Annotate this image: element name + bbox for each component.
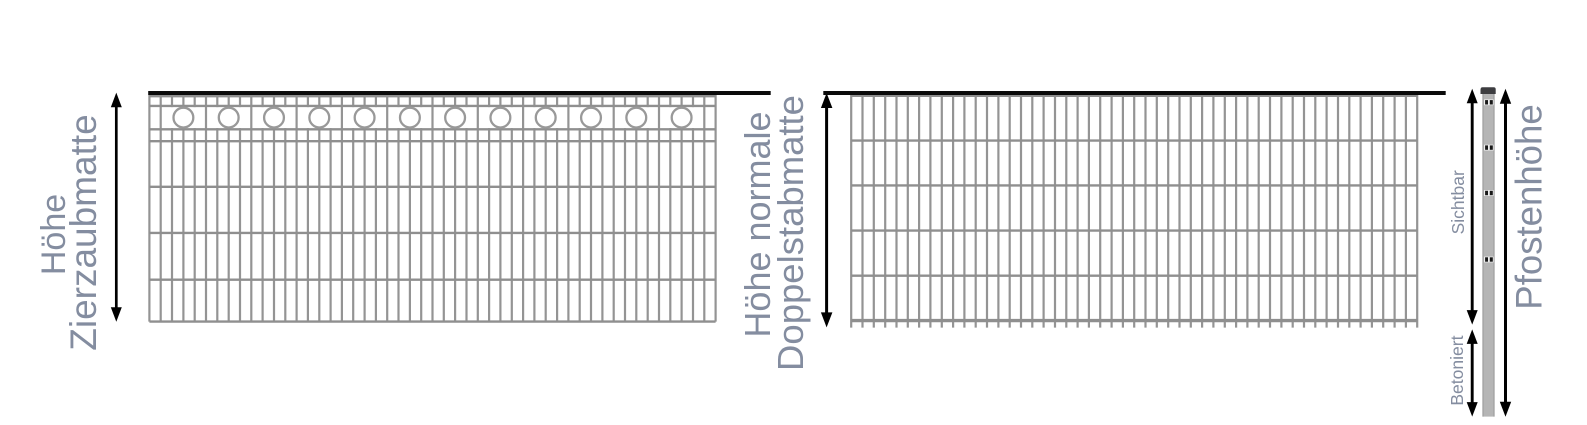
svg-text:Betoniert: Betoniert: [1447, 335, 1467, 405]
svg-text:Sichtbar: Sichtbar: [1448, 170, 1468, 234]
svg-text:Zierzaubmatte: Zierzaubmatte: [63, 114, 104, 351]
svg-text:Pfostenhöhe: Pfostenhöhe: [1508, 104, 1549, 309]
svg-text:Doppelstabmatte: Doppelstabmatte: [770, 95, 811, 371]
